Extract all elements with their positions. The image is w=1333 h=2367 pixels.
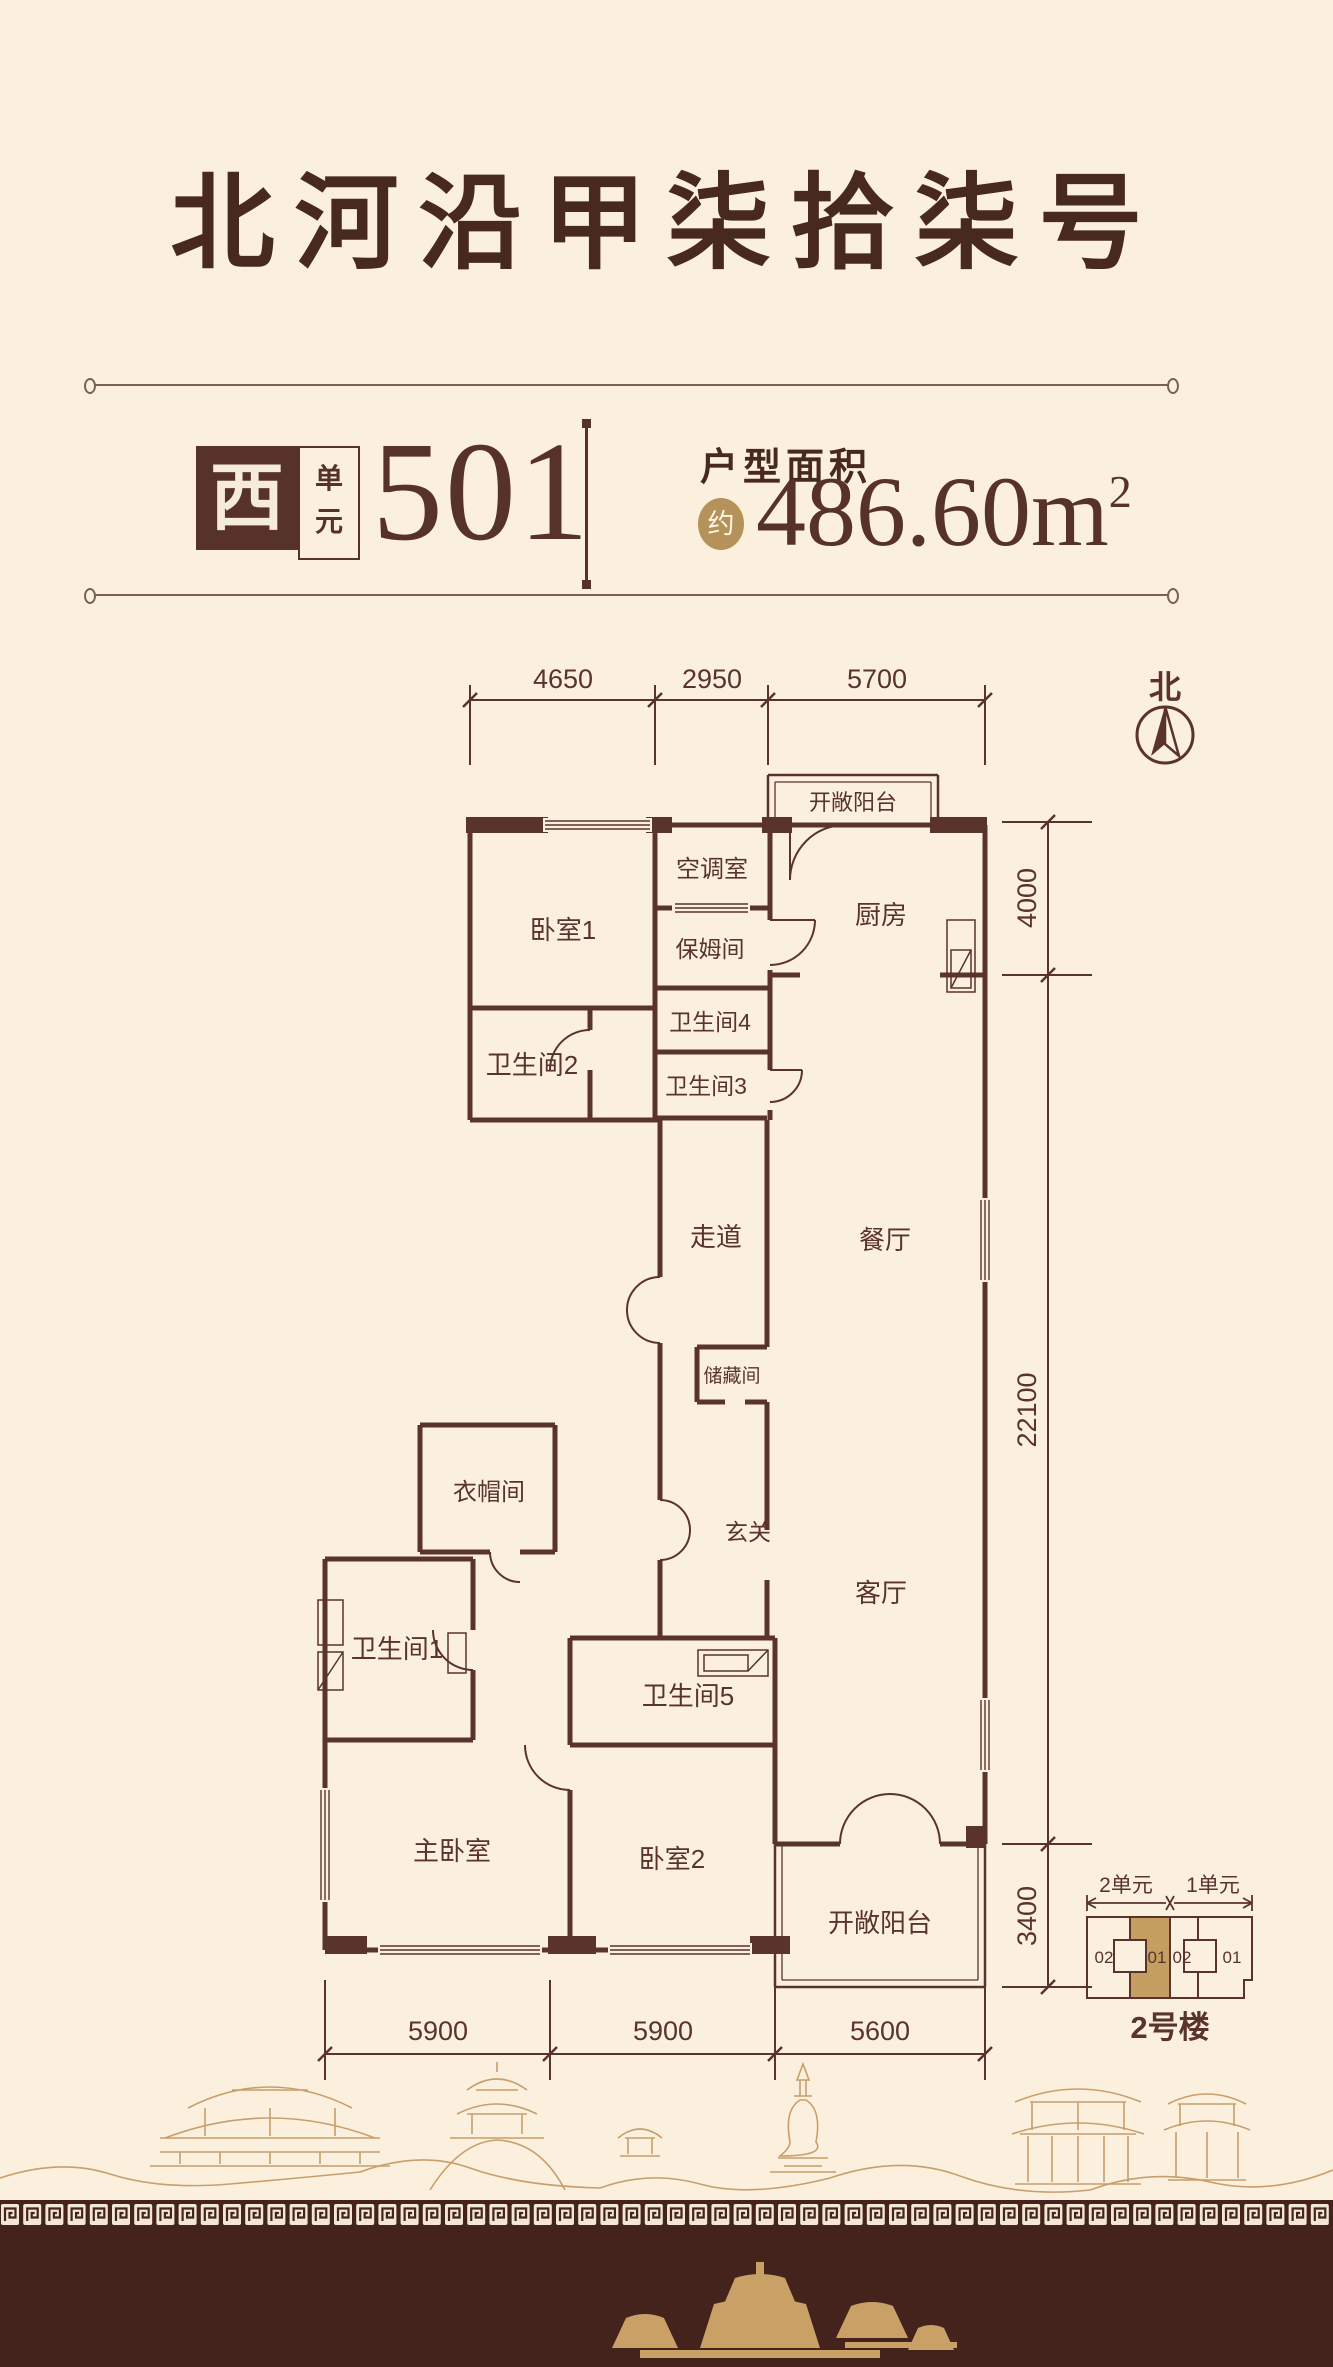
svg-text:4000: 4000 bbox=[1012, 868, 1042, 928]
skyline-illustration bbox=[0, 2050, 1333, 2200]
room-label: 客厅 bbox=[855, 1578, 907, 1608]
tower-icon bbox=[1012, 2089, 1144, 2184]
room-label: 餐厅 bbox=[859, 1225, 911, 1255]
room-label: 开敞阳台 bbox=[809, 790, 897, 815]
north-arrow-icon: 北 bbox=[1137, 669, 1193, 763]
room-label: 储藏间 bbox=[703, 1365, 760, 1387]
svg-text:5600: 5600 bbox=[850, 2016, 910, 2046]
room-label: 卫生间5 bbox=[642, 1681, 734, 1711]
room-label: 卫生间3 bbox=[665, 1073, 747, 1099]
pavilion-icon bbox=[618, 2129, 662, 2156]
svg-text:4650: 4650 bbox=[533, 664, 593, 694]
room-label: 卧室2 bbox=[639, 1844, 705, 1874]
room-label: 走道 bbox=[690, 1222, 742, 1252]
palace-silhouette bbox=[0, 2226, 1333, 2367]
floor-plan: 北 4650 2950 5700 4000 22100 3400 5900 59… bbox=[0, 640, 1333, 2100]
room-labels: 开敞阳台 空调室 厨房 卧室1 保姆间 卫生间4 卫生间2 卫生间3 走道 餐厅… bbox=[351, 790, 932, 1938]
area-number: 486.60m bbox=[756, 456, 1109, 567]
unit-number: 501 bbox=[372, 420, 591, 562]
temple-icon bbox=[150, 2087, 390, 2166]
room-label: 卫生间1 bbox=[351, 1634, 443, 1664]
svg-text:02: 02 bbox=[1095, 1948, 1114, 1967]
separator-line-bottom bbox=[95, 594, 1168, 596]
room-label: 主卧室 bbox=[413, 1836, 491, 1866]
svg-text:3400: 3400 bbox=[1012, 1886, 1042, 1946]
room-label: 空调室 bbox=[676, 856, 748, 883]
area-sup: 2 bbox=[1109, 466, 1132, 517]
keyplan-unit-right: 1单元 bbox=[1186, 1874, 1240, 1897]
svg-text:5700: 5700 bbox=[847, 664, 907, 694]
keyplan-building-label: 2号楼 bbox=[1130, 2010, 1209, 2045]
unit-direction-badge: 西 bbox=[196, 446, 298, 550]
room-label: 卫生间4 bbox=[669, 1009, 751, 1035]
room-label: 玄关 bbox=[725, 1519, 771, 1545]
unit-suffix-char: 元 bbox=[300, 501, 358, 544]
svg-text:22100: 22100 bbox=[1012, 1372, 1042, 1447]
keyplan-unit-left: 2单元 bbox=[1099, 1874, 1153, 1897]
unit-suffix-badge: 单 元 bbox=[298, 446, 360, 560]
pagoda-icon bbox=[430, 2062, 565, 2190]
approx-badge: 约 bbox=[698, 498, 744, 550]
room-label: 卫生间2 bbox=[486, 1050, 578, 1080]
room-label: 衣帽间 bbox=[453, 1479, 525, 1506]
area-value: 486.60m2 bbox=[756, 462, 1132, 562]
divider-cap bbox=[582, 419, 591, 428]
dagoba-icon bbox=[770, 2064, 836, 2172]
separator-line-top bbox=[95, 384, 1168, 386]
keyplan-span-arrows bbox=[1087, 1895, 1252, 1911]
line-end-circle bbox=[1167, 588, 1179, 604]
north-label: 北 bbox=[1149, 669, 1181, 705]
divider-cap bbox=[582, 580, 591, 589]
room-label: 保姆间 bbox=[676, 936, 745, 962]
svg-text:5900: 5900 bbox=[408, 2016, 468, 2046]
room-label: 厨房 bbox=[855, 900, 907, 930]
line-end-circle bbox=[1167, 378, 1179, 394]
svg-text:5900: 5900 bbox=[633, 2016, 693, 2046]
line-end-circle bbox=[84, 378, 96, 394]
svg-text:01: 01 bbox=[1223, 1948, 1242, 1967]
tower-icon bbox=[1164, 2094, 1250, 2180]
room-label: 开敞阳台 bbox=[828, 1908, 932, 1938]
shafts-and-fixtures bbox=[318, 920, 975, 1690]
meander-pattern bbox=[0, 2202, 1333, 2227]
line-end-circle bbox=[84, 588, 96, 604]
footer-band bbox=[0, 2200, 1333, 2367]
svg-text:02: 02 bbox=[1173, 1948, 1192, 1967]
key-plan: 02 01 02 01 2单元 1单元 2号楼 bbox=[1087, 1874, 1252, 2045]
room-label: 卧室1 bbox=[530, 915, 596, 945]
page-title: 北河沿甲柒拾柒号 bbox=[0, 168, 1333, 282]
svg-text:01: 01 bbox=[1148, 1948, 1167, 1967]
unit-suffix-char: 单 bbox=[300, 458, 358, 501]
svg-text:2950: 2950 bbox=[682, 664, 742, 694]
balcony-walls bbox=[768, 775, 985, 1987]
header-divider bbox=[585, 428, 588, 580]
walls-outer bbox=[325, 825, 985, 1950]
